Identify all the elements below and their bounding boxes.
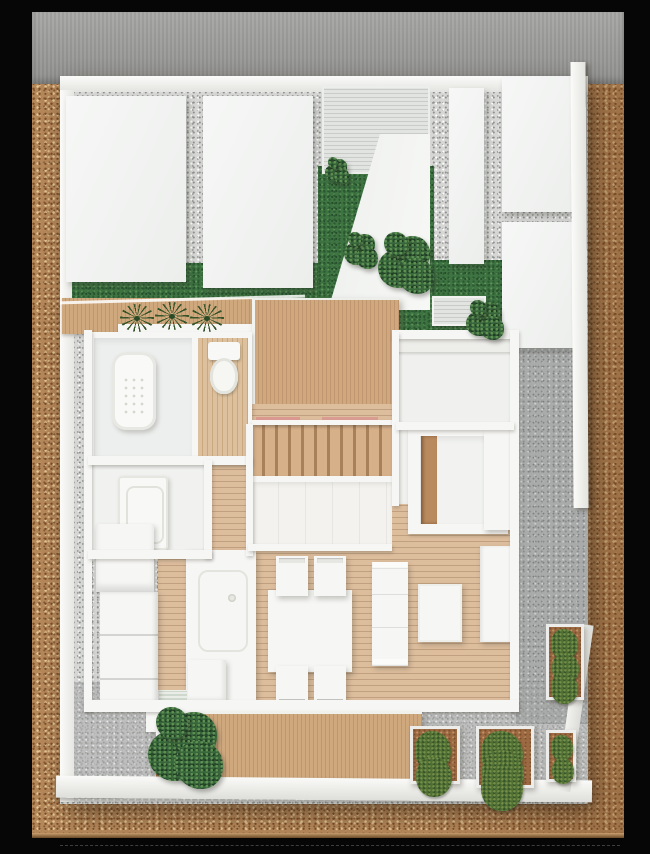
model-tree	[466, 302, 506, 342]
planter-bush	[481, 766, 523, 812]
tree-foliage-lump	[470, 300, 486, 316]
wall-washroom-bottom	[88, 550, 212, 559]
kitchen-counter-zone	[252, 482, 392, 550]
bathtub-jets	[122, 376, 146, 416]
tree-foliage-lump	[398, 258, 434, 294]
tree-foliage-lump	[356, 247, 378, 269]
planter-bush	[551, 735, 573, 761]
dining-chair-n	[276, 556, 308, 596]
tree-foliage-lump	[156, 707, 188, 739]
coffee-table	[418, 584, 462, 642]
toilet-bowl	[210, 358, 238, 394]
wall-stairs-left	[246, 424, 253, 556]
vestibule-pillar	[484, 430, 510, 530]
neighbor-building-panel	[66, 96, 186, 282]
planter-bush	[551, 673, 578, 704]
media-cabinet	[480, 546, 514, 642]
tree-foliage-lump	[348, 232, 362, 246]
boundary-wall-right-top	[570, 62, 588, 508]
spiky-plant	[190, 304, 224, 332]
stair-handrail-red	[256, 417, 300, 420]
table-edge-line	[60, 845, 620, 846]
model-tree	[378, 236, 438, 296]
model-tree	[148, 712, 228, 792]
neighbor-building-panel	[449, 88, 484, 264]
tree-foliage-lump	[384, 232, 408, 256]
model-tree	[344, 234, 380, 270]
model-tree	[325, 159, 351, 185]
planter-bush	[552, 758, 574, 784]
shelf-unit	[100, 592, 158, 702]
spiky-plant	[155, 302, 189, 330]
tree-foliage-lump	[480, 316, 504, 340]
planter-box	[476, 726, 534, 788]
vestibule-door-slot	[421, 436, 437, 524]
planter-box	[546, 624, 584, 700]
planter-bush	[416, 757, 452, 797]
wall-washroom-right	[204, 460, 212, 558]
sofa	[372, 562, 408, 666]
island-faucet	[228, 594, 236, 602]
wall-entry-left	[392, 332, 399, 506]
wall-left	[84, 330, 92, 712]
dining-table	[268, 590, 352, 672]
board-bottom-edge	[32, 833, 624, 838]
tree-foliage-lump	[334, 168, 350, 184]
stair-stringer-top	[252, 420, 396, 425]
wall-right	[510, 330, 519, 712]
wall-strip-top	[32, 12, 624, 84]
wall-bath-bottom	[88, 456, 252, 465]
tree-foliage-lump	[328, 157, 338, 167]
wall-bottom	[84, 700, 519, 712]
planter-box	[410, 726, 460, 784]
tree-foliage-lump	[175, 741, 223, 789]
neighbor-building-panel	[502, 76, 578, 212]
neighbor-building-panel	[203, 96, 313, 288]
wall-kitchen-edge	[248, 544, 392, 551]
dining-chair-n	[314, 556, 346, 596]
staircase	[252, 424, 396, 480]
model-site-base	[60, 76, 588, 804]
wall-entry-bottom	[396, 422, 514, 430]
spiky-plant	[120, 304, 154, 332]
model-photo-page: { "scene": { "type": "photograph", "subj…	[0, 0, 650, 854]
island-sink-outline	[198, 570, 248, 652]
island-step-block	[188, 660, 226, 702]
stair-handrail-red-2	[322, 417, 378, 420]
planter-box	[546, 730, 576, 782]
